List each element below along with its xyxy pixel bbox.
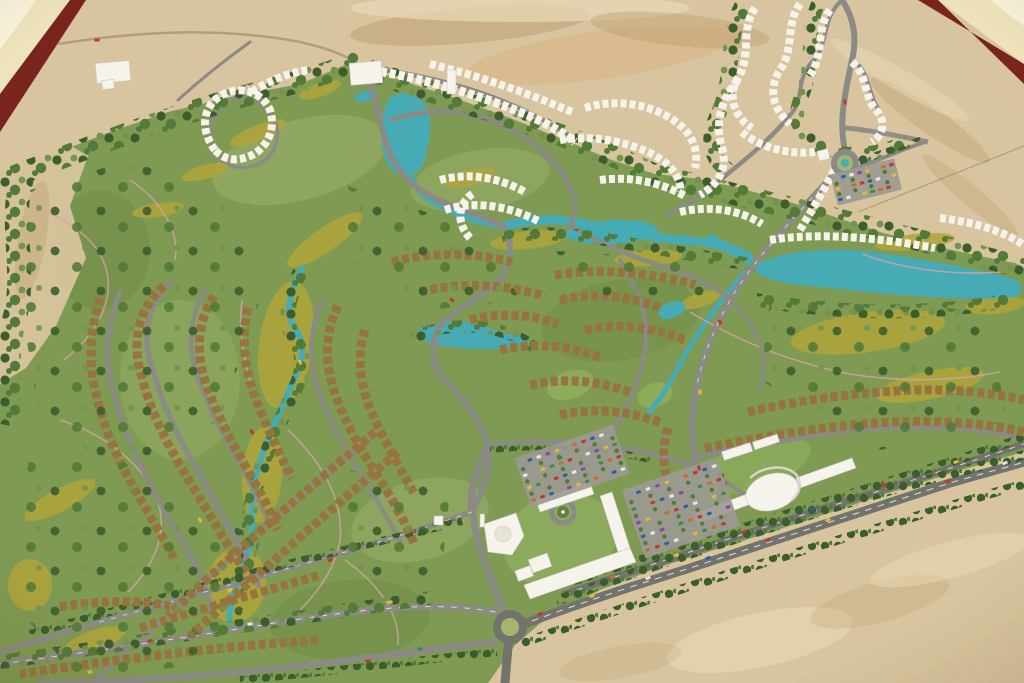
scale-model-photo <box>0 0 1024 683</box>
model-scene <box>0 0 1024 683</box>
photo-vignette <box>0 0 1024 683</box>
